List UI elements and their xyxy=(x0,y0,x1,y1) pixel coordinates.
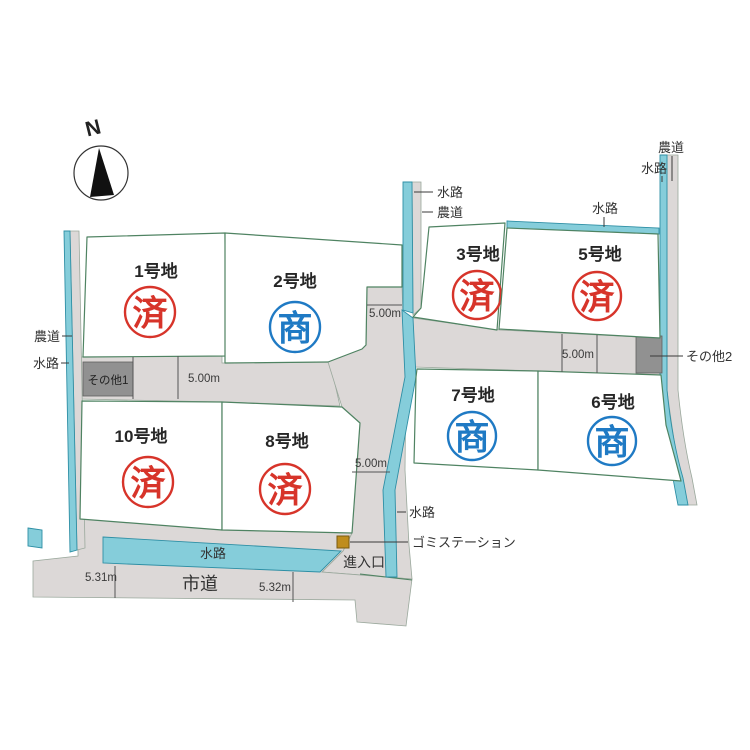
farmroad-topright-label: 農道 xyxy=(658,140,684,155)
waterway-central-upper xyxy=(403,182,413,313)
waterway-centlow-label: 水路 xyxy=(409,505,435,520)
waterway-far-left-patch xyxy=(28,528,42,548)
waterway-topmid-label: 水路 xyxy=(592,201,618,216)
map-svg: 1号地 済 2号地 商 3号地 済 5号地 済 7号地 商 xyxy=(0,0,750,750)
meas-west-row: 5.00m xyxy=(188,373,220,385)
lot-5-label: 5号地 xyxy=(578,244,621,264)
lot-10: 10号地 済 xyxy=(80,401,222,530)
lot-7-label: 7号地 xyxy=(451,385,494,405)
farmroad-left-label: 農道 xyxy=(34,329,60,344)
waterway-topright-label: 水路 xyxy=(641,161,667,176)
other1-label: その他1 xyxy=(88,374,129,387)
lot-10-stamp: 済 xyxy=(130,465,166,504)
meas-central-bottom: 5.00m xyxy=(355,458,387,470)
waterway-central-label: 水路 xyxy=(437,185,463,200)
lot-10-label: 10号地 xyxy=(115,426,168,446)
farmroad-central-label: 農道 xyxy=(437,205,463,220)
waterway-bottom-label: 水路 xyxy=(200,546,226,561)
lot-7: 7号地 商 xyxy=(414,369,538,470)
lot-1: 1号地 済 xyxy=(83,233,226,357)
lot-3-label: 3号地 xyxy=(456,244,499,264)
lot-8: 8号地 済 xyxy=(222,402,360,533)
farm-road-central-strip xyxy=(412,182,421,315)
lot-5: 5号地 済 xyxy=(499,228,660,338)
meas-central-top: 5.00m xyxy=(369,308,401,320)
lot-2-stamp: 商 xyxy=(277,310,312,349)
lot-6-label: 6号地 xyxy=(591,392,634,412)
lot-3-stamp: 済 xyxy=(459,278,495,317)
compass-needle xyxy=(90,148,114,197)
compass: N xyxy=(74,115,128,200)
city-road-label: 市道 xyxy=(182,574,218,594)
entrance-label: 進入口 xyxy=(343,554,385,570)
lot-1-label: 1号地 xyxy=(134,261,177,281)
meas-532: 5.32m xyxy=(259,582,291,594)
lot-6-stamp: 商 xyxy=(594,424,629,463)
lot-5-stamp: 済 xyxy=(579,279,615,318)
garbage-station-label: ゴミステーション xyxy=(412,535,516,550)
subdivision-map: 1号地 済 2号地 商 3号地 済 5号地 済 7号地 商 xyxy=(0,0,750,750)
meas-531: 5.31m xyxy=(85,572,117,584)
lot-3: 3号地 済 xyxy=(413,223,505,330)
compass-n-label: N xyxy=(83,115,103,141)
lot-6: 6号地 商 xyxy=(538,371,681,481)
lot-1-stamp: 済 xyxy=(132,295,168,334)
lot-8-label: 8号地 xyxy=(265,431,308,451)
lot-2-label: 2号地 xyxy=(273,271,316,291)
garbage-station-marker xyxy=(337,536,349,548)
waterway-left-label: 水路 xyxy=(33,356,59,371)
lot-7-stamp: 商 xyxy=(454,419,489,458)
other2-block xyxy=(636,336,662,373)
other2-label: その他2 xyxy=(686,349,732,364)
meas-east-row: 5.00m xyxy=(562,349,594,361)
lot-8-stamp: 済 xyxy=(267,472,303,511)
